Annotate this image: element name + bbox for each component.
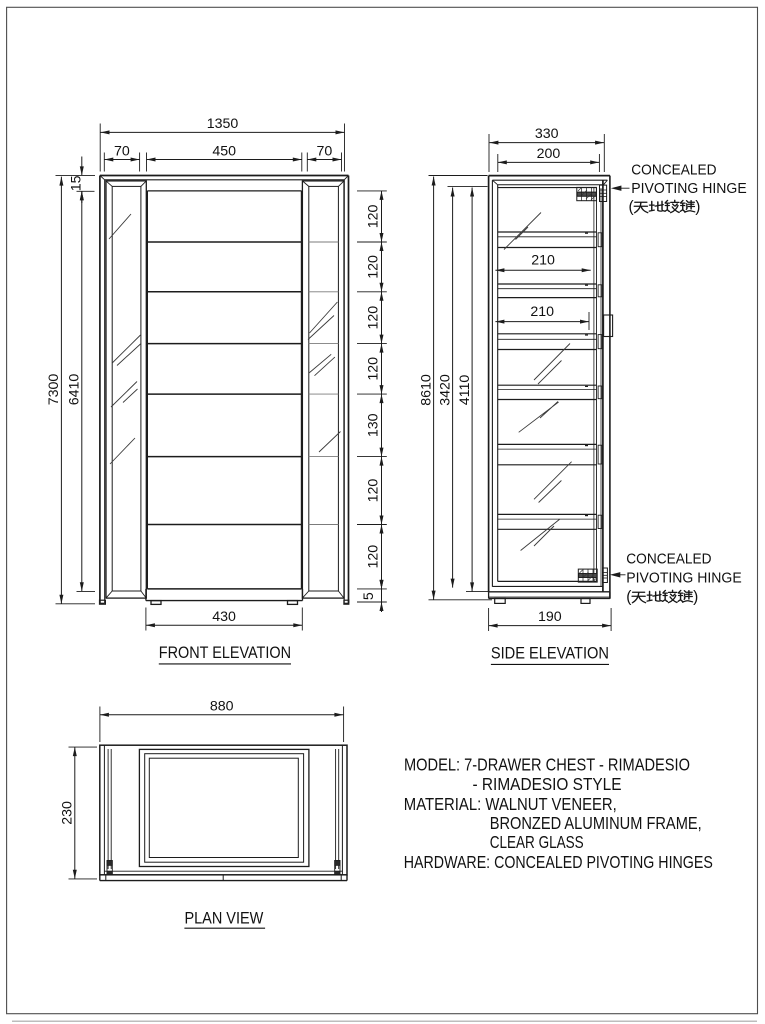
svg-text:210: 210 bbox=[531, 253, 555, 269]
svg-text:- RIMADESIO STYLE: - RIMADESIO STYLE bbox=[473, 774, 622, 794]
svg-text:PIVOTING HINGE: PIVOTING HINGE bbox=[626, 570, 741, 587]
svg-text:70: 70 bbox=[317, 143, 333, 159]
svg-text:1350: 1350 bbox=[207, 116, 239, 132]
svg-text:BRONZED ALUMINUM FRAME,: BRONZED ALUMINUM FRAME, bbox=[490, 813, 702, 833]
svg-text:120: 120 bbox=[365, 205, 381, 229]
svg-text:230: 230 bbox=[60, 801, 76, 825]
svg-text:120: 120 bbox=[365, 479, 381, 503]
svg-text:MODEL: 7-DRAWER CHEST - RIMADE: MODEL: 7-DRAWER CHEST - RIMADESIO bbox=[404, 754, 690, 774]
svg-text:190: 190 bbox=[538, 609, 562, 625]
svg-text:130: 130 bbox=[365, 413, 381, 437]
svg-text:120: 120 bbox=[365, 255, 381, 279]
svg-text:CONCEALED: CONCEALED bbox=[631, 161, 716, 178]
svg-text:120: 120 bbox=[365, 306, 381, 330]
svg-text:120: 120 bbox=[365, 545, 381, 569]
svg-text:70: 70 bbox=[114, 143, 130, 159]
svg-text:3420: 3420 bbox=[438, 374, 454, 406]
svg-text:7300: 7300 bbox=[46, 374, 62, 406]
svg-text:): ) bbox=[695, 199, 700, 216]
svg-text:CONCEALED: CONCEALED bbox=[626, 551, 711, 568]
svg-text:): ) bbox=[693, 589, 698, 606]
svg-text:200: 200 bbox=[537, 146, 561, 162]
svg-text:210: 210 bbox=[530, 304, 554, 320]
svg-text:CLEAR GLASS: CLEAR GLASS bbox=[490, 832, 584, 852]
svg-text:PLAN VIEW: PLAN VIEW bbox=[184, 908, 263, 927]
svg-text:SIDE ELEVATION: SIDE ELEVATION bbox=[491, 643, 609, 662]
svg-text:PIVOTING HINGE: PIVOTING HINGE bbox=[631, 180, 746, 197]
svg-text:6410: 6410 bbox=[67, 374, 83, 406]
svg-text:120: 120 bbox=[365, 357, 381, 381]
svg-text:(: ( bbox=[626, 589, 632, 606]
svg-text:4110: 4110 bbox=[457, 375, 473, 406]
svg-text:FRONT ELEVATION: FRONT ELEVATION bbox=[159, 643, 291, 662]
svg-text:450: 450 bbox=[212, 143, 236, 159]
svg-text:15: 15 bbox=[69, 175, 85, 191]
svg-text:(: ( bbox=[629, 199, 635, 216]
svg-text:MATERIAL: WALNUT VENEER,: MATERIAL: WALNUT VENEER, bbox=[404, 794, 617, 814]
svg-text:HARDWARE: CONCEALED PIVOTING H: HARDWARE: CONCEALED PIVOTING HINGES bbox=[404, 852, 713, 872]
svg-text:880: 880 bbox=[210, 699, 234, 715]
svg-text:430: 430 bbox=[212, 609, 236, 625]
svg-text:5: 5 bbox=[361, 592, 377, 600]
svg-text:8610: 8610 bbox=[418, 374, 434, 406]
svg-text:330: 330 bbox=[535, 126, 559, 142]
